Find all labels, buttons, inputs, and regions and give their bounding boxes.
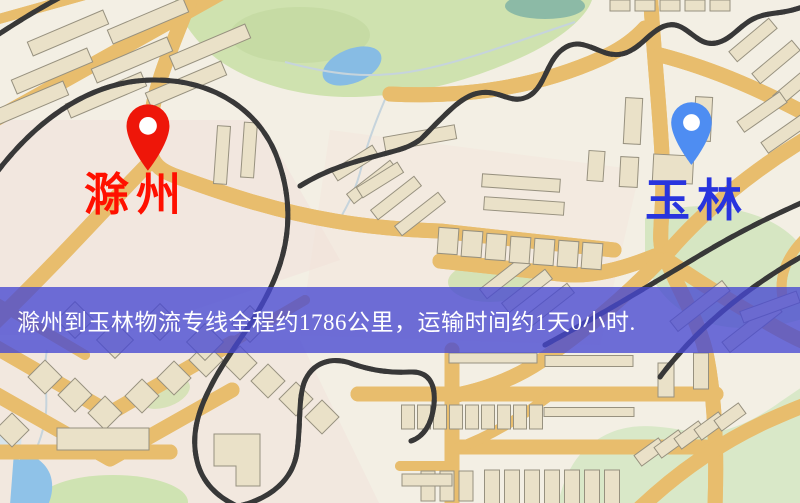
map-canvas bbox=[0, 0, 800, 503]
pin-shape-chuzhou bbox=[127, 104, 170, 170]
marker-label-chuzhou: 滁州 bbox=[84, 173, 188, 218]
route-info-banner: 滁州到玉林物流专线全程约1786公里，运输时间约1天0小时. bbox=[0, 287, 800, 353]
pin-hole bbox=[139, 117, 157, 135]
pin-hole bbox=[683, 114, 700, 131]
marker-label-yulin: 玉林 bbox=[645, 179, 749, 224]
map-viewport: 滁州 玉林 滁州到玉林物流专线全程约1786公里，运输时间约1天0小时. bbox=[0, 0, 800, 503]
marker-pin-chuzhou[interactable] bbox=[120, 100, 176, 176]
route-info-text: 滁州到玉林物流专线全程约1786公里，运输时间约1天0小时. bbox=[0, 303, 636, 337]
pin-shape-yulin bbox=[671, 102, 712, 165]
marker-pin-yulin[interactable] bbox=[665, 98, 718, 170]
